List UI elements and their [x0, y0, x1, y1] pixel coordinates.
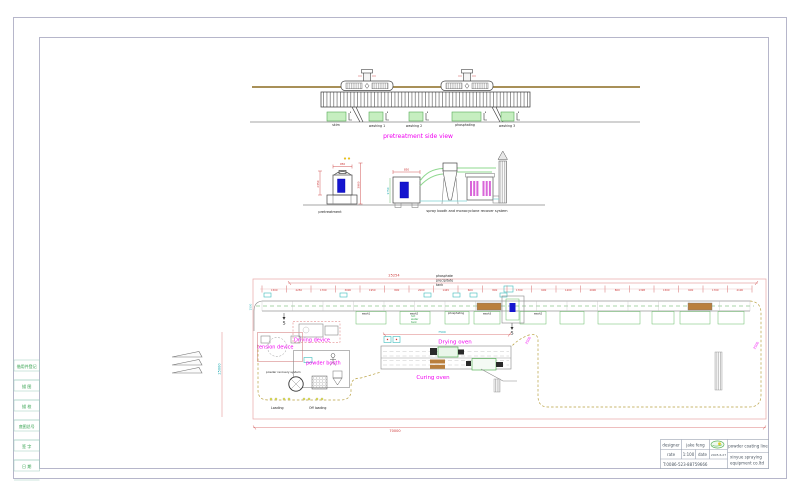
overall-dim-bottom: 70000 — [389, 429, 400, 433]
plan-boundary — [253, 279, 766, 419]
loading-label: Loading — [271, 406, 284, 410]
dim-value: 1200 — [565, 288, 572, 292]
note-line: tank — [436, 283, 443, 287]
sidebar-cell-label: 借用件登记 — [17, 363, 37, 369]
sidebar-cell-label: 签 字 — [22, 443, 31, 449]
powder-recovery-label: powder recovery system — [266, 370, 301, 374]
tank-label: skim — [332, 123, 340, 127]
flow-arrows — [172, 352, 202, 374]
dim-value: 600 — [468, 288, 473, 292]
side-view-title: pretreatment side view — [383, 133, 453, 140]
overall-dim: 25254 — [388, 274, 400, 278]
spray-booth-section: 850 1750 spray booth and monocyclo — [386, 151, 508, 213]
dim-text: 1500 — [249, 303, 253, 310]
tank-label: washing 1 — [369, 124, 385, 128]
dim-value: 800 — [492, 288, 497, 292]
company-logo-icon — [711, 441, 724, 448]
svg-text:tank: tank — [411, 320, 417, 324]
burner-motor — [430, 348, 437, 355]
cad-drawing-sheet: 借用件登记描 图描 校底图总号签 字日 期 designer jake feng… — [0, 0, 800, 493]
section-label: pretreatment — [318, 210, 342, 214]
workpiece-blue — [338, 179, 346, 193]
filter-recovery-unit — [466, 174, 495, 201]
note-line: precipitate — [436, 279, 453, 283]
conveyor-beam — [321, 92, 530, 107]
dim-text: 2500 — [524, 336, 532, 345]
tank-skim — [327, 112, 346, 121]
svg-text:S: S — [283, 321, 286, 327]
sidebar-cell-label: 描 图 — [22, 383, 31, 389]
tank-label: washing 2 — [406, 124, 422, 128]
monocyclone — [442, 163, 458, 204]
dim-value: 800 — [615, 288, 620, 292]
conveyor-return-path — [511, 301, 761, 407]
plan-tank-label: phosphating — [448, 311, 464, 315]
dim-value: 1445 — [442, 288, 449, 292]
dim-value: 1500 — [271, 288, 278, 292]
date-value: 2005.6.27 — [711, 453, 726, 457]
pretreatment-section: 2350 3960 950 pretreatment — [303, 158, 545, 214]
dim-value: 1950 — [369, 288, 376, 292]
cooling-duct — [715, 352, 722, 390]
exhaust-duct-assembly — [441, 70, 493, 91]
dim-value: 1500 — [663, 288, 670, 292]
dim-value: 2000 — [418, 288, 425, 292]
dim-text: 1750 — [386, 187, 390, 194]
dim-value: 2100 — [736, 288, 743, 292]
dim-text: 3960 — [356, 181, 360, 188]
company-name-line2: equipment co.ltd — [730, 461, 764, 466]
tank-label: washing 3 — [499, 124, 515, 128]
designer-value: jake feng — [685, 443, 705, 448]
workpiece-blue — [400, 182, 409, 198]
plan-tank — [652, 312, 674, 325]
heated-tank — [688, 303, 712, 310]
pretreatment-conveyor-plan — [254, 301, 754, 331]
dim-text: 850 — [404, 168, 410, 172]
company-name-line1: xinyue spraying — [730, 455, 762, 460]
frame-sidebar: 借用件登记描 图描 校底图总号签 字日 期 — [14, 360, 40, 480]
sidebar-cell-label: 描 校 — [22, 403, 31, 409]
designer-label: designer — [662, 443, 680, 448]
dim-value: 2250 — [295, 288, 302, 292]
rate-label: rate — [667, 452, 676, 457]
plan-tank-label: wash3 — [483, 312, 492, 316]
service-tanks — [264, 293, 507, 297]
dim-text: 2500 — [752, 341, 760, 350]
plan-tank-label: wash2 — [534, 312, 543, 316]
exhaust-stack — [493, 151, 508, 203]
tank-washing-1 — [369, 112, 383, 121]
tank-label: phosphating — [455, 123, 475, 127]
dim-value: 1700 — [320, 288, 327, 292]
dim-text: 950 — [340, 162, 346, 166]
dim-value: 2000 — [589, 288, 596, 292]
driving-device-label: Driving device — [294, 338, 330, 344]
powder-duct — [420, 169, 443, 187]
dim-value: 600 — [688, 288, 693, 292]
powder-sieve — [312, 376, 327, 389]
drawing-canvas: 借用件登记描 图描 校底图总号签 字日 期 designer jake feng… — [0, 0, 800, 493]
spray-booth-plan: S — [502, 296, 524, 337]
sidebar-cell-label: 日 期 — [22, 463, 31, 469]
dim-value: 3000 — [344, 288, 351, 292]
section-label: spray booth and monocyclone recover syst… — [426, 209, 508, 213]
phone-value: T:0086-523-88759666 — [662, 462, 708, 467]
section-mark: S — [511, 331, 514, 337]
exhaust-duct-assembly — [341, 70, 393, 91]
dim-text: 2350 — [316, 180, 320, 187]
plan-tank-label: wash1 — [362, 312, 371, 316]
tank-washing-3 — [501, 112, 514, 121]
plan-tank — [356, 312, 386, 325]
dim-value: 1700 — [712, 288, 719, 292]
oven-dim: 7500 — [438, 330, 446, 334]
tank-phosphating — [452, 112, 481, 121]
rate-value: 1:100 — [683, 452, 695, 457]
dim-value: 1398 — [638, 288, 645, 292]
drying-oven-label: Drying oven — [438, 340, 472, 346]
plan-view: 25254 phosphate precipitate tank 1500225… — [172, 274, 766, 434]
title-block: designer jake feng rate 1:100 date 2005.… — [661, 440, 769, 469]
tank-washing-2 — [409, 112, 423, 121]
sidebar-cell-label: 底图总号 — [19, 423, 35, 429]
date-label: date — [698, 452, 708, 457]
plan-tank — [718, 312, 744, 325]
plan-tank — [680, 312, 710, 325]
pretreatment-tanks — [327, 112, 520, 122]
note-line: phosphate — [436, 274, 453, 278]
dim-value: 800 — [394, 288, 399, 292]
powder-booth-label: powder booth — [306, 361, 341, 367]
curing-oven-label: Curing oven — [416, 375, 450, 381]
project-title: powder coating line — [728, 444, 768, 449]
pretreatment-side-view: skim washing 1 washing 2 phosphating was… — [250, 70, 640, 141]
curing-burner — [472, 359, 496, 371]
dim-value: 1700 — [516, 288, 523, 292]
section-mark-left: S — [283, 313, 286, 327]
heated-tank — [477, 303, 501, 310]
dim-text: 25000 — [218, 363, 222, 374]
off-loading-label: Off loading — [309, 406, 326, 410]
plan-tank — [598, 312, 640, 325]
tension-device-label: tension device — [257, 345, 293, 351]
plan-tank — [560, 312, 584, 325]
dim-value: 600 — [541, 288, 546, 292]
